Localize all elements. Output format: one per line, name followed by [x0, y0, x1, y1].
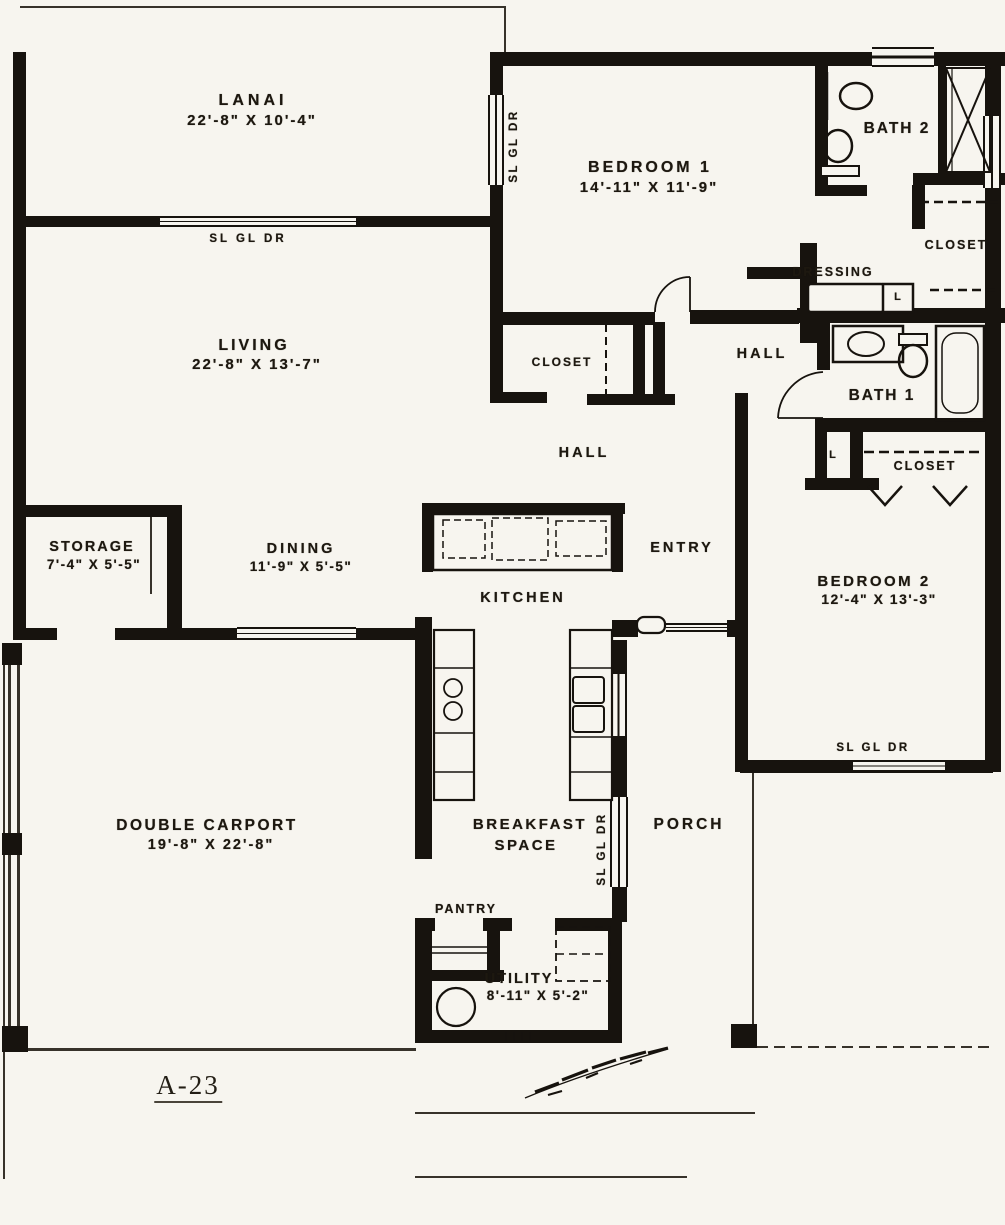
- wall: [797, 308, 1005, 323]
- porch-post: [731, 1024, 757, 1048]
- door-label-breakfast-slider: SL GL DR: [596, 812, 608, 885]
- room-label-kitchen: KITCHEN: [480, 590, 565, 606]
- wall: [817, 322, 830, 370]
- room-label-bath-2: BATH 2: [864, 120, 931, 138]
- dressing-fixtures: [808, 202, 998, 312]
- washer-dryer-icon: [556, 927, 610, 981]
- sink-icon: [444, 679, 462, 697]
- wall: [633, 322, 645, 398]
- wall: [938, 66, 946, 175]
- label-linen-upper: L: [894, 291, 902, 303]
- room-label-storage: STORAGE: [49, 539, 134, 555]
- room-dims-living: 22'-8" X 13'-7": [192, 356, 322, 373]
- range-icon: [573, 677, 604, 703]
- porch-edge-line: [752, 772, 754, 1026]
- room-label-closet-top: CLOSET: [925, 238, 988, 252]
- wall: [815, 66, 828, 191]
- wall: [13, 505, 181, 517]
- wall: [805, 478, 879, 490]
- shrub-sketch: [525, 1048, 668, 1098]
- kitchen-counter: [433, 514, 612, 570]
- room-label-utility: UTILITY: [485, 971, 554, 987]
- wall: [800, 243, 817, 343]
- room-label-living: LIVING: [218, 337, 289, 355]
- room-label-breakfast-2: SPACE: [494, 837, 557, 854]
- counter-end: [612, 513, 623, 572]
- room-label-porch: PORCH: [654, 816, 725, 834]
- range-icon: [573, 706, 604, 732]
- kitchen-counter: [570, 630, 612, 800]
- room-label-dressing: DRESSING: [792, 265, 873, 279]
- room-label-closet-mid: CLOSET: [894, 459, 957, 473]
- counter-end: [422, 513, 433, 572]
- room-dims-bedroom-1: 14'-11" X 11'-9": [580, 179, 718, 196]
- room-dims-double-carport: 19'-8" X 22'-8": [148, 837, 274, 853]
- storage-door-line: [150, 516, 152, 594]
- room-label-pantry: PANTRY: [435, 902, 497, 916]
- carport-post: [2, 833, 22, 855]
- wall: [745, 310, 799, 324]
- walkway-line: [415, 1176, 687, 1178]
- drive-edge-line: [3, 643, 5, 1179]
- tub-icon: [936, 326, 984, 420]
- wall: [355, 628, 417, 640]
- room-label-bedroom-2: BEDROOM 2: [817, 573, 930, 590]
- wall: [735, 393, 748, 772]
- wall: [490, 392, 547, 403]
- pass-through-window: [610, 674, 627, 736]
- room-label-hall-upper: HALL: [737, 346, 788, 362]
- kitchen-counter: [434, 630, 474, 800]
- carport-post: [2, 1026, 28, 1052]
- room-label-hall-lower: HALL: [559, 445, 610, 461]
- front-door-leaf: [637, 617, 665, 633]
- wall: [727, 620, 747, 637]
- wall: [612, 886, 627, 922]
- toilet-icon: [824, 130, 852, 162]
- room-dims-dining: 11'-9" X 5'-5": [250, 559, 353, 574]
- room-label-bedroom-1: BEDROOM 1: [588, 159, 712, 177]
- wall: [912, 185, 925, 229]
- label-linen-lower: L: [829, 449, 837, 461]
- wall: [850, 432, 863, 480]
- pantry-shelves: [430, 947, 487, 953]
- floor-plan: LANAI 22'-8" X 10'-4" SL GL DR BEDROOM 1…: [0, 0, 1005, 1225]
- window: [666, 623, 727, 632]
- window: [872, 47, 934, 67]
- wall: [815, 185, 867, 196]
- room-dims-lanai: 22'-8" X 10'-4": [187, 112, 317, 129]
- room-label-double-carport: DOUBLE CARPORT: [116, 817, 297, 835]
- wall: [13, 223, 26, 640]
- room-label-lanai: LANAI: [219, 92, 288, 110]
- wall: [815, 418, 990, 432]
- plan-number: A-23: [154, 1070, 222, 1101]
- toilet-icon: [899, 345, 927, 377]
- door-label-bedroom-1-slider: SL GL DR: [508, 109, 520, 182]
- screen-outline: [20, 6, 506, 8]
- wall: [608, 918, 622, 1043]
- wall: [13, 52, 26, 223]
- wall: [612, 620, 638, 637]
- wall: [415, 617, 432, 859]
- kitchen-fixtures: [433, 514, 612, 800]
- room-dims-utility: 8'-11" X 5'-2": [487, 988, 590, 1003]
- sliding-glass-door: [610, 797, 628, 887]
- laundry-tub-icon: [437, 988, 475, 1026]
- bifold-door-icon: [933, 486, 967, 505]
- wall: [182, 628, 239, 640]
- wall: [490, 312, 655, 325]
- room-label-bath-1: BATH 1: [849, 387, 916, 405]
- wall: [653, 322, 665, 403]
- wall: [115, 628, 182, 640]
- screen-outline: [504, 6, 506, 54]
- sliding-glass-door: [488, 95, 504, 185]
- sink-icon: [444, 702, 462, 720]
- sliding-glass-door: [853, 760, 945, 772]
- window: [237, 627, 356, 640]
- room-label-entry: ENTRY: [650, 540, 714, 556]
- wall: [13, 628, 57, 640]
- wall: [690, 310, 748, 324]
- sliding-glass-door: [160, 216, 356, 227]
- wall: [415, 1030, 622, 1043]
- walkway-line: [415, 1112, 755, 1114]
- room-label-dining: DINING: [267, 541, 336, 557]
- window: [983, 116, 1001, 188]
- door-label-bedroom-2-slider: SL GL DR: [836, 742, 909, 754]
- bath1-fixtures: [833, 326, 984, 420]
- room-dims-bedroom-2: 12'-4" X 13'-3": [821, 591, 937, 607]
- carport-post: [2, 643, 22, 665]
- wall: [167, 505, 182, 633]
- room-dims-storage: 7'-4" X 5'-5": [47, 557, 141, 572]
- room-label-closet-bedroom1: CLOSET: [532, 355, 593, 369]
- walkway-line: [757, 1046, 989, 1048]
- wall: [422, 503, 625, 514]
- wall: [815, 430, 827, 482]
- room-label-breakfast: BREAKFAST: [473, 816, 587, 833]
- carport-edge-line: [26, 1048, 416, 1051]
- door-label-lanai-slider: SL GL DR: [209, 233, 286, 245]
